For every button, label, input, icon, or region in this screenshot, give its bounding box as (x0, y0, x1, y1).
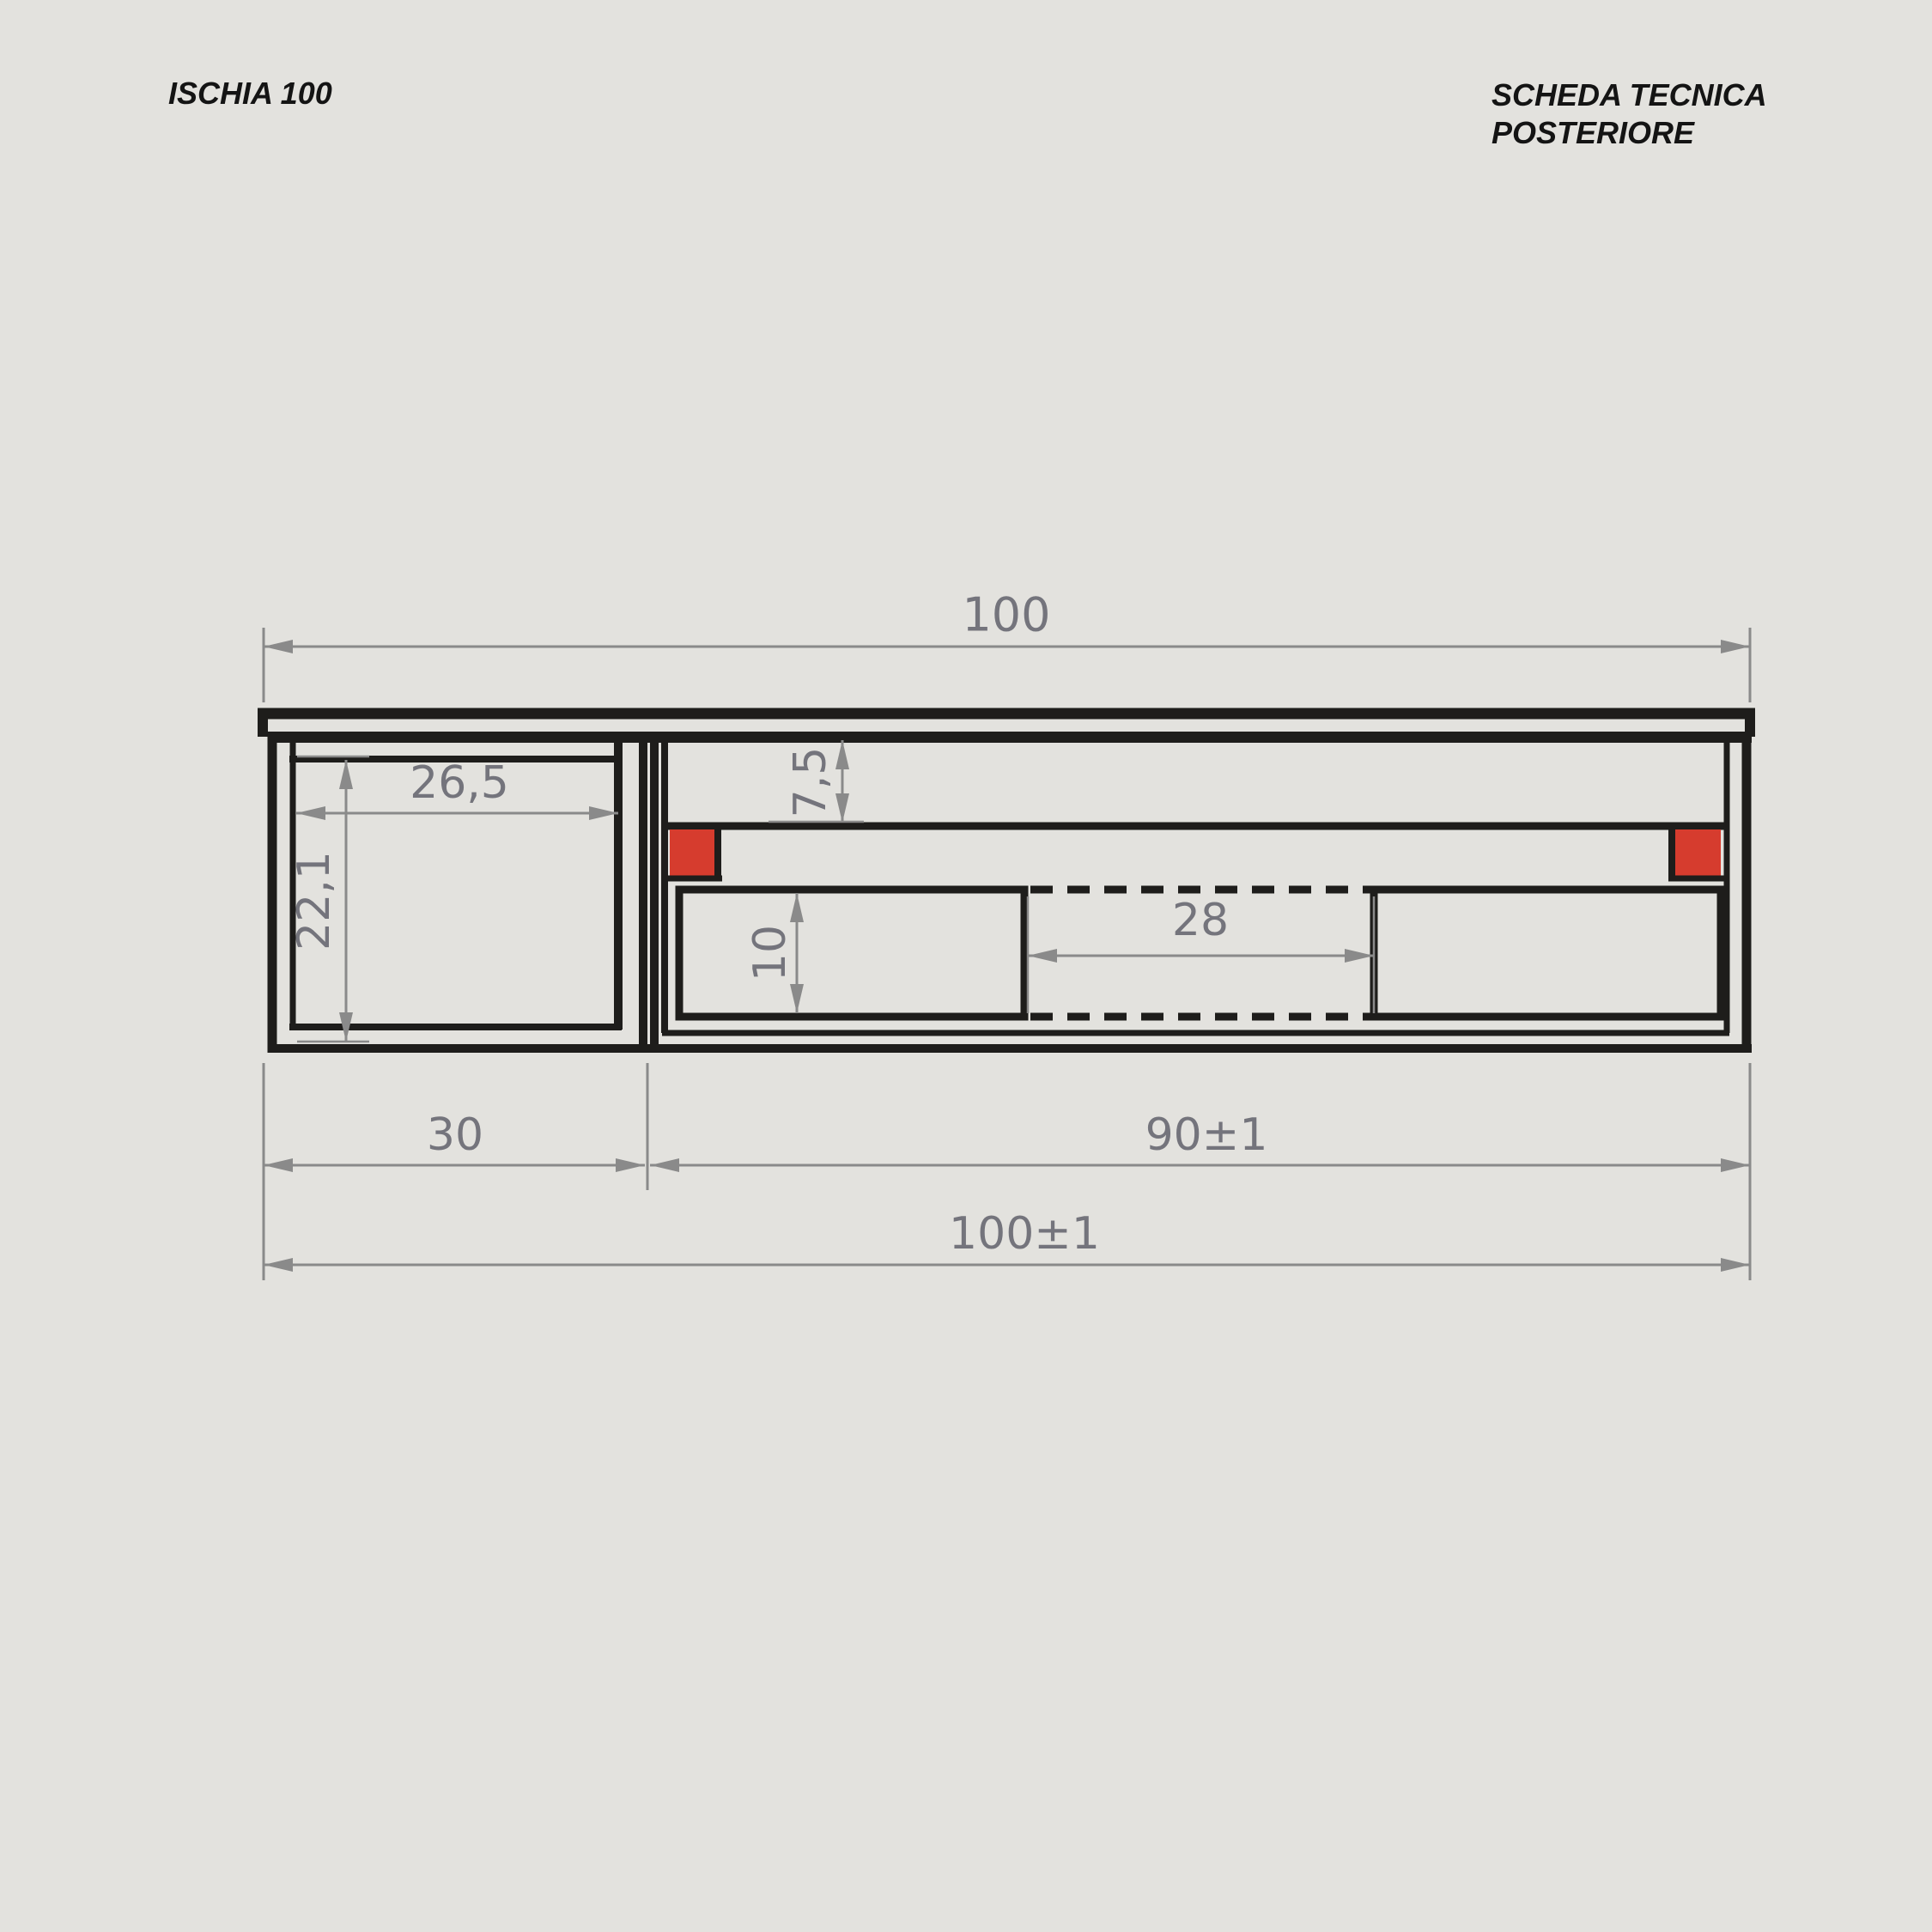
dim-right-module-width: 90±1 (650, 1109, 1750, 1172)
dim-label: 100±1 (949, 1208, 1100, 1260)
dim-label: 28 (1172, 895, 1229, 946)
arrowhead-right (1721, 1258, 1750, 1272)
sheet-subtitle: POSTERIORE (1492, 115, 1695, 150)
drawing-canvas: ISCHIA 100 SCHEDA TECNICA POSTERIORE (0, 0, 1932, 1932)
dim-left-module-width: 30 (264, 1109, 645, 1172)
dim-drawer-height: 10 (744, 893, 804, 1013)
dim-left-compartment-height: 22,1 (289, 760, 369, 1042)
dim-overall-width-top: 100 (264, 588, 1750, 703)
dim-label: 22,1 (289, 851, 340, 951)
right-bracket-red-block (1675, 829, 1721, 876)
arrowhead-right (589, 806, 618, 820)
dim-label: 26,5 (410, 757, 509, 809)
left-wall-bracket (662, 826, 722, 878)
dim-label: 7,5 (785, 747, 836, 818)
left-bracket-red-block (670, 829, 715, 876)
arrowhead-left (264, 1158, 293, 1172)
right-drawer-box (1374, 890, 1721, 1017)
arrowhead-right (616, 1158, 645, 1172)
dim-rail-offset: 7,5 (769, 740, 864, 823)
dim-label: 10 (744, 925, 796, 981)
arrowhead-left (650, 1158, 679, 1172)
dim-center-clearance: 28 (1028, 895, 1374, 1013)
arrowhead-left (296, 806, 325, 820)
model-title: ISCHIA 100 (168, 76, 332, 111)
dim-label: 90±1 (1145, 1109, 1268, 1161)
arrowhead-right (1721, 1158, 1750, 1172)
arrowhead-down (835, 793, 849, 823)
left-drawer-box (679, 890, 1024, 1017)
sheet-title: SCHEDA TECNICA (1492, 77, 1767, 112)
dim-overall-width-bottom: 100±1 (264, 1208, 1750, 1272)
dim-label: 100 (962, 588, 1050, 642)
arrowhead-down (790, 984, 804, 1013)
arrowhead-left (264, 1258, 293, 1272)
arrowhead-up (835, 740, 849, 769)
dim-label: 30 (427, 1109, 483, 1161)
arrowhead-right (1721, 640, 1750, 653)
arrowhead-up (339, 760, 353, 789)
arrowhead-up (790, 893, 804, 922)
right-wall-bracket (1668, 826, 1728, 878)
arrowhead-left (1028, 949, 1057, 963)
cabinet-top-panel (258, 708, 1755, 737)
arrowhead-left (264, 640, 293, 653)
arrowhead-right (1345, 949, 1374, 963)
technical-sheet: ISCHIA 100 SCHEDA TECNICA POSTERIORE (0, 0, 1932, 1932)
